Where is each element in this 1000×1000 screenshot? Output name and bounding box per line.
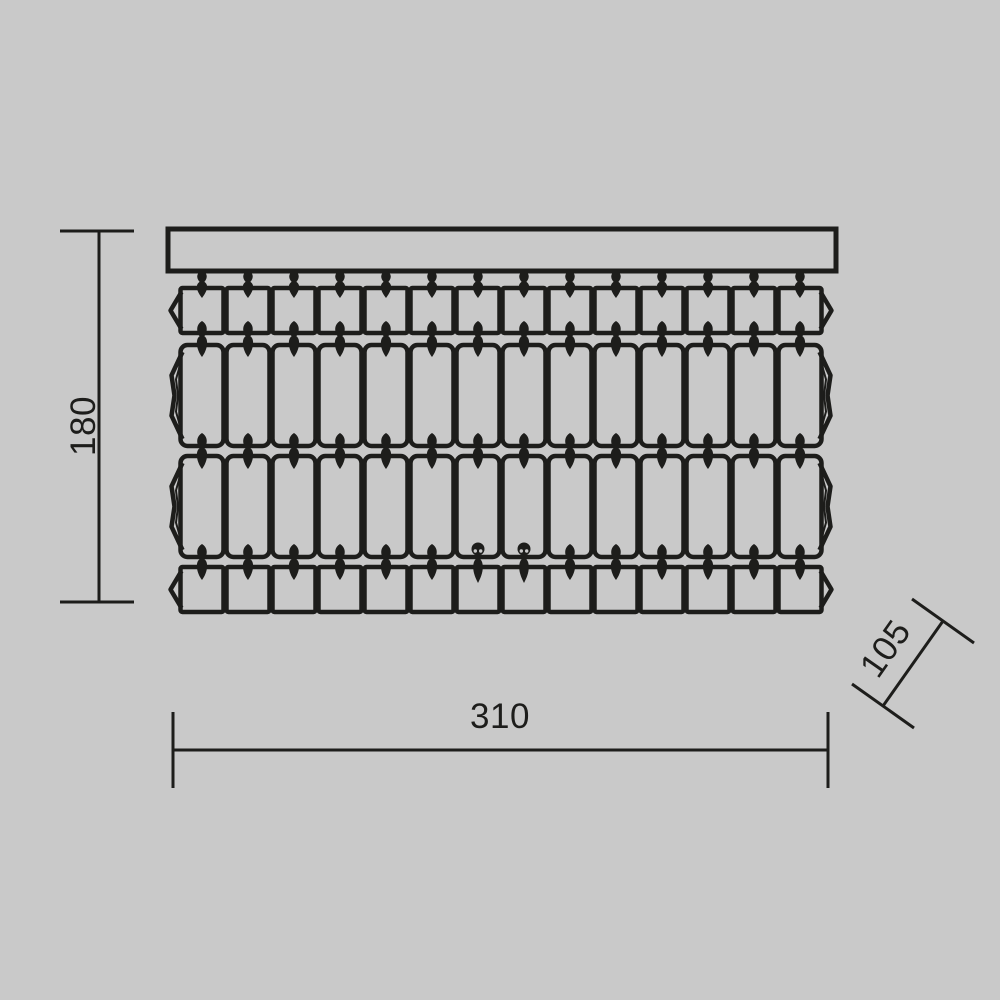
bead-connector-row3-col1 xyxy=(197,433,207,469)
crystal-row3-cell5 xyxy=(365,456,408,557)
bead-connector-row1-col14 xyxy=(795,270,805,298)
ball-pin-hole xyxy=(479,549,482,552)
chandelier-technical-drawing: 180 310 105 xyxy=(0,0,1000,1000)
bead-connector-row1-col1 xyxy=(197,270,207,298)
depth-dimension-top-tick xyxy=(912,599,974,643)
crystal-row3-cell1 xyxy=(181,456,224,557)
crystal-row2-cell9 xyxy=(549,345,592,446)
bead-connector-row2-col9 xyxy=(565,321,575,357)
crystal-row2-cell1 xyxy=(181,345,224,446)
bead-connector-row1-col13 xyxy=(749,270,759,298)
bead-connector-row3-col10 xyxy=(611,433,621,469)
crystal-row2-cell2 xyxy=(227,345,270,446)
bead-connector-row1-col3 xyxy=(289,270,299,298)
bead-connector-row3-col12 xyxy=(703,433,713,469)
crystal-row3-cell8 xyxy=(503,456,546,557)
ball-pin-head xyxy=(472,543,485,556)
bead-connector-row3-col11 xyxy=(657,433,667,469)
crystal-row2-cell5 xyxy=(365,345,408,446)
bead-connector-row2-col3 xyxy=(289,321,299,357)
bead-connector-row3-col7 xyxy=(473,433,483,469)
crystal-row3-cell11 xyxy=(641,456,684,557)
bead-connector-row2-col8 xyxy=(519,321,529,357)
bead-connector-row4-col5 xyxy=(381,544,391,580)
bead-connector-row3-col5 xyxy=(381,433,391,469)
bead-connector-row2-col14 xyxy=(795,321,805,357)
crystal-row2-cell10 xyxy=(595,345,638,446)
bead-connector-row1-col9 xyxy=(565,270,575,298)
bead-connector-row2-col1 xyxy=(197,321,207,357)
crystal-row2-cell12 xyxy=(687,345,730,446)
ball-pin-hole xyxy=(520,549,523,552)
bead-connector-row4-col9 xyxy=(565,544,575,580)
ball-pin-hole xyxy=(525,549,528,552)
crystal-row3-cell12 xyxy=(687,456,730,557)
height-dimension-label: 180 xyxy=(64,396,103,456)
bead-connector-row4-col1 xyxy=(197,544,207,580)
drawing-canvas: 180 310 105 xyxy=(0,0,1000,1000)
crystal-row2-cell3 xyxy=(273,345,316,446)
canopy-bar xyxy=(168,229,836,271)
bead-connector-row1-col2 xyxy=(243,270,253,298)
bead-connector-row2-col5 xyxy=(381,321,391,357)
bead-connector-row2-col6 xyxy=(427,321,437,357)
width-dimension: 310 xyxy=(173,697,828,788)
crystal-row2-cell7 xyxy=(457,345,500,446)
depth-dimension: 105 xyxy=(852,599,974,728)
crystal-row2-cell4 xyxy=(319,345,362,446)
crystal-row3-cell14 xyxy=(779,456,822,557)
crystal-row3-cell4 xyxy=(319,456,362,557)
bead-connector-row1-col8 xyxy=(519,270,529,298)
crystal-row2-cell11 xyxy=(641,345,684,446)
bead-connector-row4-col10 xyxy=(611,544,621,580)
width-dimension-label: 310 xyxy=(470,697,530,736)
bead-connector-row3-col13 xyxy=(749,433,759,469)
bead-connector-row1-col6 xyxy=(427,270,437,298)
crystal-row2-cell14 xyxy=(779,345,822,446)
ball-pin-head xyxy=(518,543,531,556)
bead-connector-row4-col11 xyxy=(657,544,667,580)
height-dimension: 180 xyxy=(60,231,134,602)
bead-connector-row4-col14 xyxy=(795,544,805,580)
crystal-row2-cell6 xyxy=(411,345,454,446)
bead-connector-row1-col12 xyxy=(703,270,713,298)
bead-connector-row2-col12 xyxy=(703,321,713,357)
bead-connector-row1-col5 xyxy=(381,270,391,298)
bead-connector-row4-col6 xyxy=(427,544,437,580)
bead-connector-row3-col4 xyxy=(335,433,345,469)
ball-pin-drop xyxy=(473,557,483,583)
bead-connector-row4-col3 xyxy=(289,544,299,580)
crystal-row3-cell13 xyxy=(733,456,776,557)
bead-connector-row3-col14 xyxy=(795,433,805,469)
depth-dimension-bottom-tick xyxy=(852,684,914,728)
crystal-row3-cell3 xyxy=(273,456,316,557)
bead-connector-row4-col4 xyxy=(335,544,345,580)
crystal-row3-cell9 xyxy=(549,456,592,557)
crystal-row3-cell2 xyxy=(227,456,270,557)
bead-connector-row3-col8 xyxy=(519,433,529,469)
bead-connector-row4-col12 xyxy=(703,544,713,580)
crystal-row2-cell8 xyxy=(503,345,546,446)
bead-connector-row2-col7 xyxy=(473,321,483,357)
ball-pin-drop xyxy=(519,557,529,583)
crystal-row3-cell6 xyxy=(411,456,454,557)
bead-connector-row3-col6 xyxy=(427,433,437,469)
bead-connector-row3-col2 xyxy=(243,433,253,469)
bead-connector-row2-col4 xyxy=(335,321,345,357)
bead-connector-row4-col2 xyxy=(243,544,253,580)
bead-connector-row2-col2 xyxy=(243,321,253,357)
bead-connector-row1-col7 xyxy=(473,270,483,298)
ball-pin-hole xyxy=(474,549,477,552)
chandelier-front-view xyxy=(168,229,836,612)
bead-connector-row2-col10 xyxy=(611,321,621,357)
crystal-row3-cell7 xyxy=(457,456,500,557)
bead-connector-row3-col9 xyxy=(565,433,575,469)
crystal-row2-cell13 xyxy=(733,345,776,446)
bead-connector-row3-col3 xyxy=(289,433,299,469)
bead-connector-row1-col10 xyxy=(611,270,621,298)
bead-connector-row4-col13 xyxy=(749,544,759,580)
bead-connector-row1-col11 xyxy=(657,270,667,298)
bead-connector-row2-col11 xyxy=(657,321,667,357)
depth-dimension-label: 105 xyxy=(852,613,918,684)
bead-connector-row2-col13 xyxy=(749,321,759,357)
bead-connector-row1-col4 xyxy=(335,270,345,298)
crystal-row3-cell10 xyxy=(595,456,638,557)
